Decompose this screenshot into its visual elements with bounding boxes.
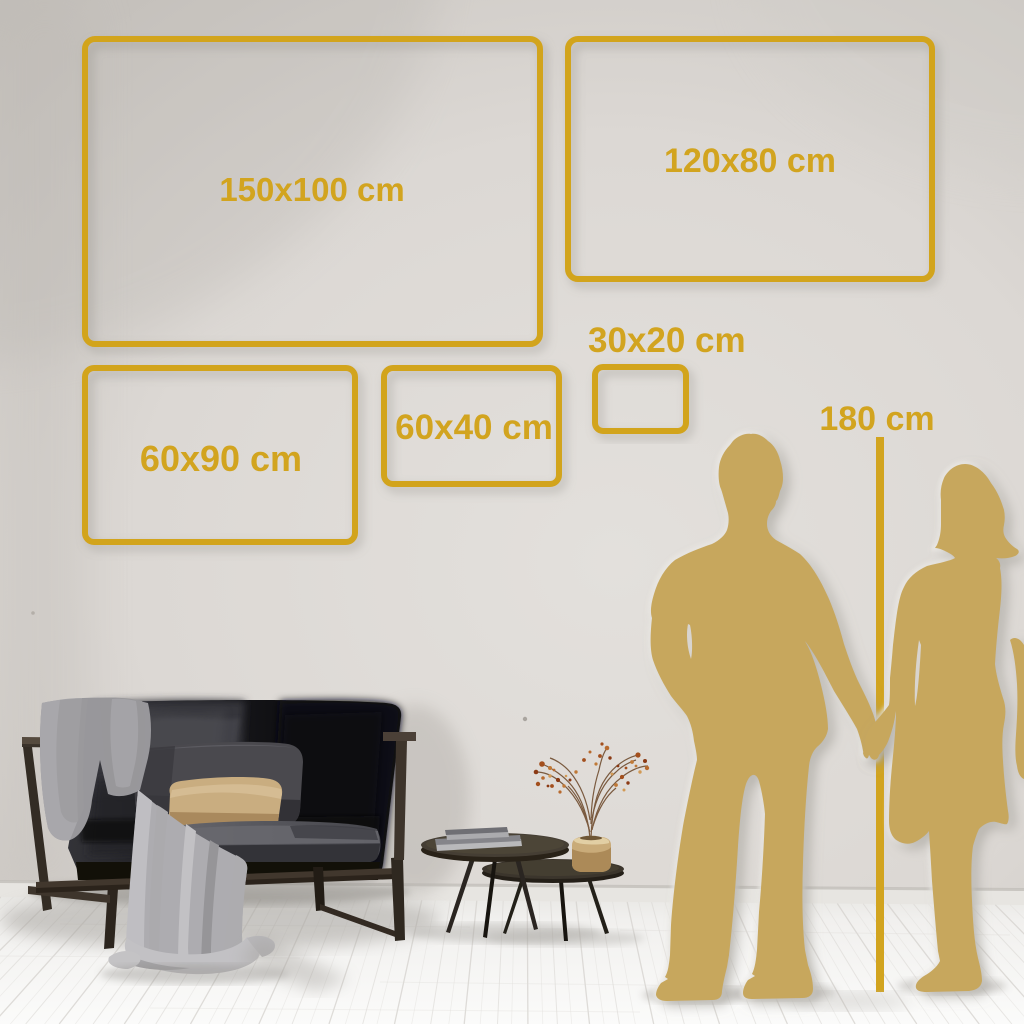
svg-text:120x80 cm: 120x80 cm bbox=[664, 142, 836, 180]
svg-text:30x20 cm: 30x20 cm bbox=[588, 321, 746, 360]
svg-text:150x100 cm: 150x100 cm bbox=[219, 171, 404, 208]
svg-text:60x90 cm: 60x90 cm bbox=[140, 438, 302, 479]
svg-text:180 cm: 180 cm bbox=[819, 400, 934, 438]
svg-text:60x40 cm: 60x40 cm bbox=[395, 408, 553, 447]
